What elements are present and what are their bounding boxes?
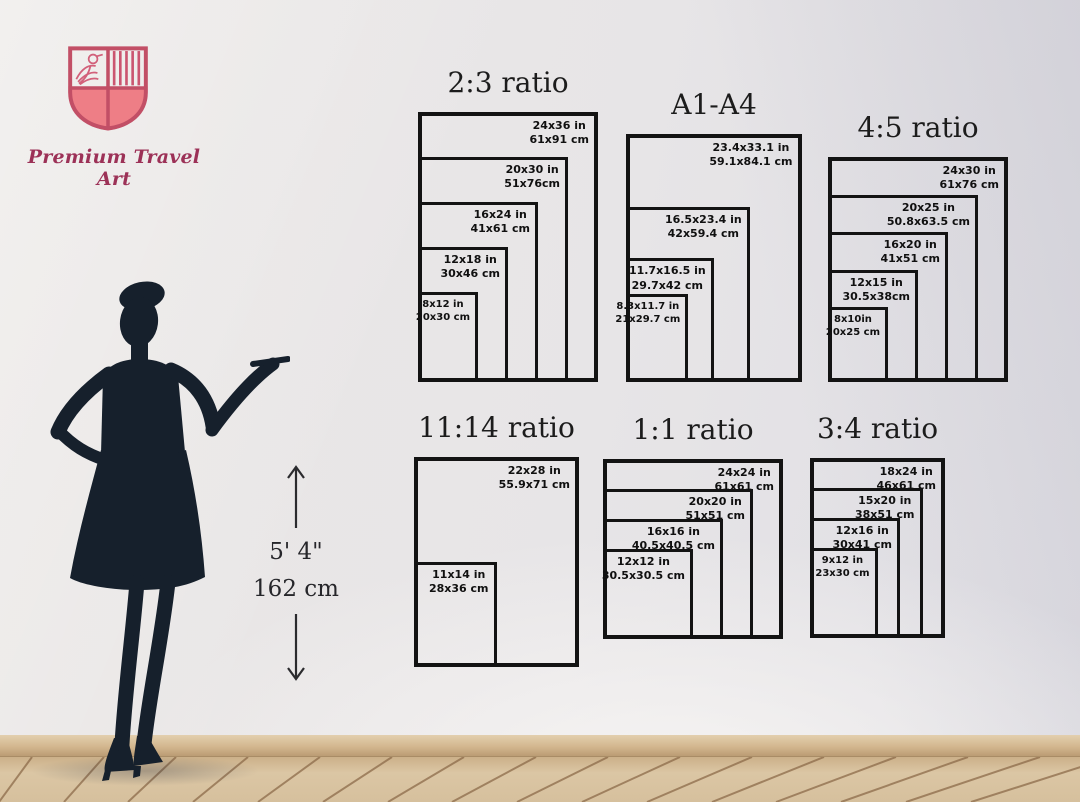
size-label: 22x28 in55.9x71 cm: [499, 464, 570, 493]
size-box: 8.3x11.7 in21x29.7 cm: [626, 294, 688, 382]
size-label: 12x12 in30.5x30.5 cm: [602, 555, 685, 584]
size-boxes-1-1: 24x24 in61x61 cm20x20 in51x51 cm16x16 in…: [603, 459, 783, 639]
size-chart-11-14: 11:14 ratio 22x28 in55.9x71 cm11x14 in28…: [414, 457, 579, 667]
size-label: 12x18 in30x46 cm: [440, 253, 500, 282]
size-label: 24x36 in61x91 cm: [529, 119, 589, 148]
size-box: 9x12 in23x30 cm: [810, 548, 878, 638]
chart-title-4-5: 4:5 ratio: [857, 111, 978, 144]
height-feet: 5' 4": [269, 539, 322, 567]
size-label: 16x24 in41x61 cm: [470, 208, 530, 237]
brand-name: Premium Travel Art: [16, 146, 212, 190]
size-label: 11x14 in28x36 cm: [429, 568, 489, 597]
chart-title-1-1: 1:1 ratio: [632, 413, 753, 446]
arrow-down-icon: [284, 612, 308, 682]
size-label: 9x12 in23x30 cm: [815, 554, 869, 580]
size-label: 23.4x33.1 in59.1x84.1 cm: [709, 141, 792, 170]
chart-title-a1-a4: A1-A4: [671, 88, 757, 121]
size-boxes-4-5: 24x30 in61x76 cm20x25 in50.8x63.5 cm16x2…: [828, 157, 1008, 382]
arrow-up-icon: [284, 464, 308, 530]
size-boxes-a1-a4: 23.4x33.1 in59.1x84.1 cm16.5x23.4 in42x5…: [626, 134, 802, 382]
size-boxes-3-4: 18x24 in46x61 cm15x20 in38x51 cm12x16 in…: [810, 458, 945, 638]
bird-emblem-icon: [76, 55, 102, 85]
size-chart-a1-a4: A1-A4 23.4x33.1 in59.1x84.1 cm16.5x23.4 …: [626, 134, 802, 382]
size-label: 12x15 in30.5x38cm: [842, 276, 910, 305]
size-box: 8x12 in20x30 cm: [418, 292, 478, 382]
size-box: 12x12 in30.5x30.5 cm: [603, 549, 693, 639]
shield-crest-icon: [64, 42, 152, 134]
size-label: 24x30 in61x76 cm: [939, 164, 999, 193]
size-box: 11x14 in28x36 cm: [414, 562, 497, 667]
size-label: 16x20 in41x51 cm: [880, 238, 940, 267]
size-label: 8.3x11.7 in21x29.7 cm: [615, 300, 680, 326]
size-label: 20x25 in50.8x63.5 cm: [887, 201, 970, 230]
size-chart-3-4: 3:4 ratio 18x24 in46x61 cm15x20 in38x51 …: [810, 458, 945, 638]
size-chart-1-1: 1:1 ratio 24x24 in61x61 cm20x20 in51x51 …: [603, 459, 783, 639]
poster-size-guide-scene: Premium Travel Art: [0, 0, 1080, 802]
height-cm: 162 cm: [253, 576, 339, 604]
size-box: 8x10in20x25 cm: [828, 307, 888, 382]
size-chart-4-5: 4:5 ratio 24x30 in61x76 cm20x25 in50.8x6…: [828, 157, 1008, 382]
chart-title-11-14: 11:14 ratio: [418, 411, 575, 444]
height-indicator: 5' 4" 162 cm: [250, 464, 342, 682]
chart-title-2-3: 2:3 ratio: [447, 66, 568, 99]
size-boxes-11-14: 22x28 in55.9x71 cm11x14 in28x36 cm: [414, 457, 579, 667]
size-label: 16.5x23.4 in42x59.4 cm: [665, 213, 742, 242]
size-chart-2-3: 2:3 ratio 24x36 in61x91 cm20x30 in51x76c…: [418, 112, 598, 382]
chart-title-3-4: 3:4 ratio: [817, 412, 938, 445]
size-boxes-2-3: 24x36 in61x91 cm20x30 in51x76cm16x24 in4…: [418, 112, 598, 382]
size-label: 8x12 in20x30 cm: [416, 298, 470, 324]
size-label: 20x30 in51x76cm: [504, 163, 560, 192]
size-label: 11.7x16.5 in29.7x42 cm: [629, 264, 706, 293]
size-label: 8x10in20x25 cm: [826, 313, 880, 339]
